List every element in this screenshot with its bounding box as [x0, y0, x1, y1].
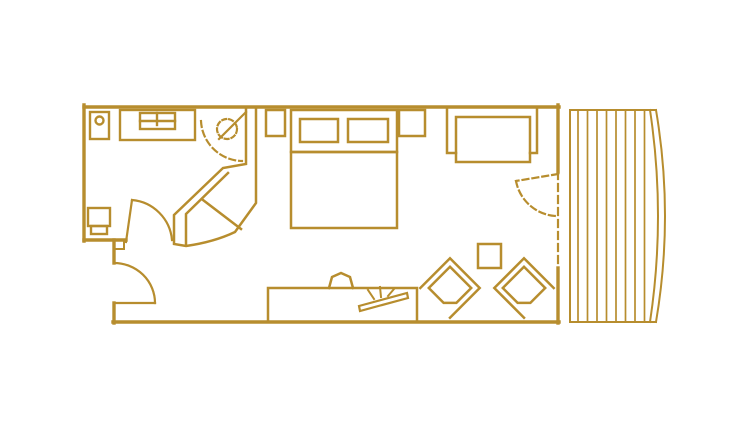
tv-ray-middle	[380, 287, 381, 297]
floor-plan-drawing	[0, 0, 754, 435]
floor-plan-stage	[0, 0, 754, 435]
background	[0, 0, 754, 435]
